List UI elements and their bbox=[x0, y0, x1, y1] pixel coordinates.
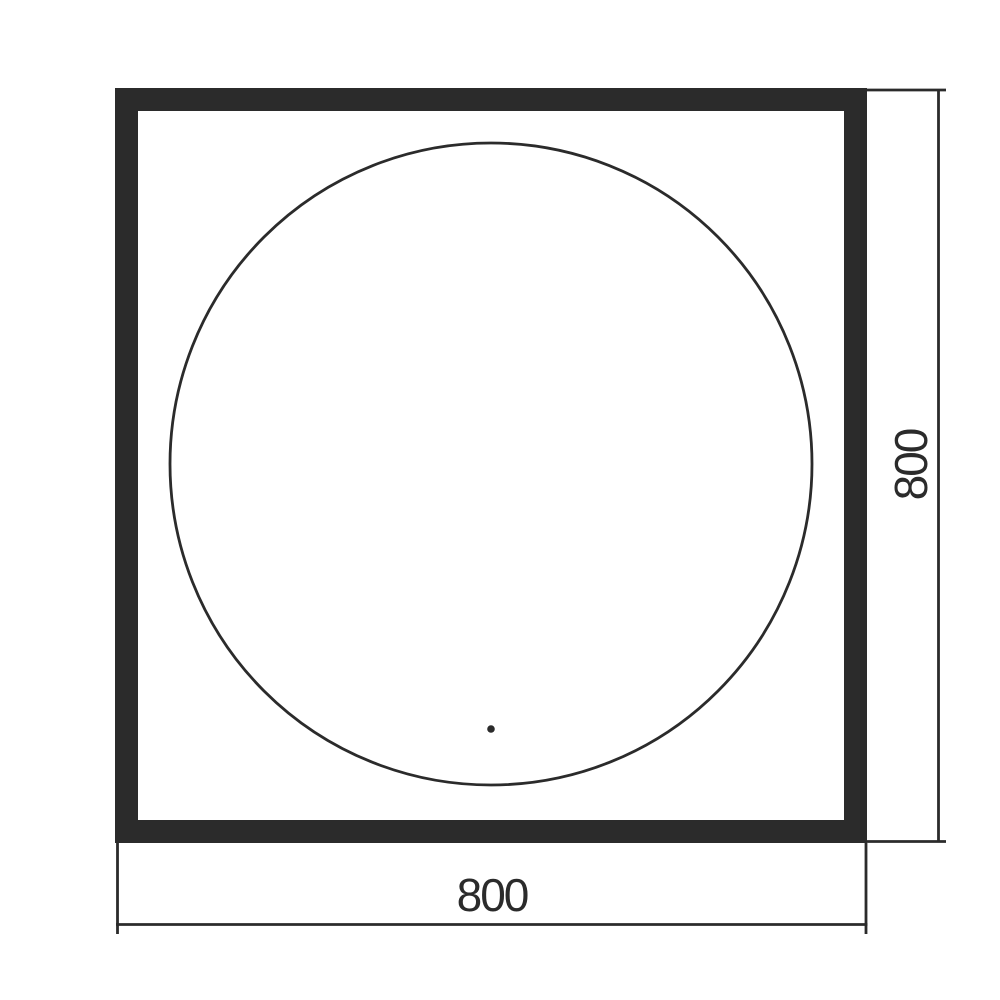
width-dimension-label: 800 bbox=[457, 869, 528, 921]
technical-drawing-canvas: 800 800 bbox=[0, 0, 1000, 1000]
mirror-frame bbox=[127, 100, 856, 832]
height-dimension-label: 800 bbox=[885, 429, 937, 500]
mirror-circle bbox=[170, 143, 812, 785]
mirror-dimension-drawing: 800 800 bbox=[0, 0, 1000, 1000]
touch-sensor-dot bbox=[487, 725, 495, 733]
